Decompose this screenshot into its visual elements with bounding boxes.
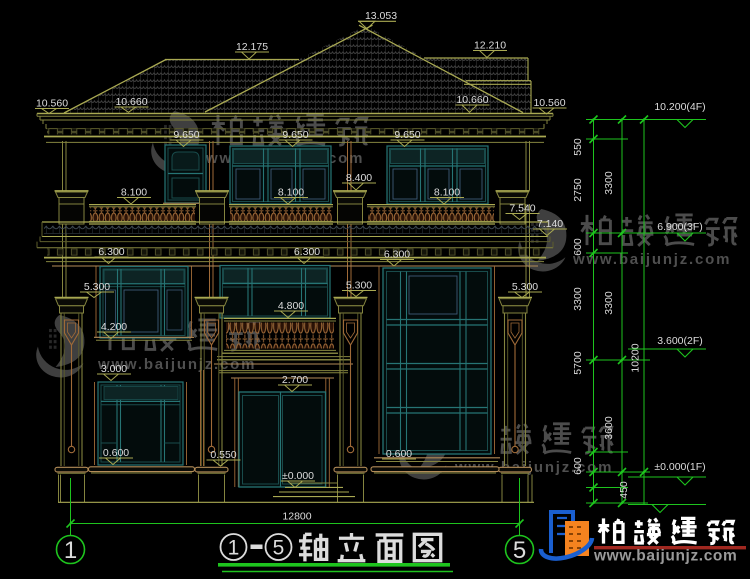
- svg-text:8.400: 8.400: [346, 172, 372, 184]
- svg-text:6.300: 6.300: [98, 246, 124, 258]
- svg-text:www.baijunjz.com: www.baijunjz.com: [593, 548, 737, 565]
- svg-text:7.140: 7.140: [537, 218, 563, 230]
- svg-text:1: 1: [64, 537, 77, 564]
- svg-text:450: 450: [618, 481, 630, 499]
- svg-text:10.660: 10.660: [115, 96, 147, 108]
- svg-text:12800: 12800: [282, 511, 311, 523]
- svg-text:8.100: 8.100: [121, 187, 147, 199]
- svg-text:7.540: 7.540: [509, 203, 535, 215]
- svg-text:3300: 3300: [572, 287, 584, 311]
- svg-text:12.210: 12.210: [474, 40, 506, 52]
- svg-text:3.000: 3.000: [101, 363, 127, 375]
- svg-text:2.700: 2.700: [282, 374, 308, 386]
- svg-text:0.600: 0.600: [386, 448, 412, 460]
- svg-text:6.900(3F): 6.900(3F): [657, 221, 703, 233]
- svg-text:www.baijunjz.com: www.baijunjz.com: [572, 251, 731, 268]
- svg-text:5.300: 5.300: [346, 280, 372, 292]
- svg-text:10200: 10200: [630, 343, 642, 372]
- svg-text:10.660: 10.660: [456, 94, 488, 106]
- svg-text:6.300: 6.300: [294, 246, 320, 258]
- svg-text:12.175: 12.175: [236, 41, 268, 53]
- svg-text:1: 1: [228, 537, 240, 560]
- svg-text:3300: 3300: [603, 291, 615, 315]
- svg-text:5.300: 5.300: [84, 281, 110, 293]
- svg-text:3600: 3600: [603, 416, 615, 440]
- svg-text:±0.000(1F): ±0.000(1F): [654, 461, 705, 473]
- svg-text:0.550: 0.550: [210, 449, 236, 461]
- svg-text:5.300: 5.300: [512, 281, 538, 293]
- svg-text:5: 5: [273, 537, 285, 560]
- svg-text:9.650: 9.650: [394, 129, 420, 141]
- svg-text:600: 600: [572, 238, 584, 256]
- svg-text:5: 5: [513, 537, 526, 564]
- svg-text:10.560: 10.560: [36, 98, 68, 110]
- svg-text:4.200: 4.200: [101, 321, 127, 333]
- svg-text:0.600: 0.600: [103, 447, 129, 459]
- svg-text:3300: 3300: [603, 171, 615, 195]
- svg-text:9.650: 9.650: [173, 129, 199, 141]
- svg-text:10.560: 10.560: [533, 97, 565, 109]
- svg-text:9.650: 9.650: [282, 129, 308, 141]
- svg-text:550: 550: [572, 138, 584, 156]
- svg-text:13.053: 13.053: [365, 10, 397, 22]
- svg-text:4.800: 4.800: [278, 300, 304, 312]
- svg-text:6.300: 6.300: [384, 249, 410, 261]
- svg-text:±0.000: ±0.000: [282, 470, 314, 482]
- svg-text:5700: 5700: [572, 351, 584, 375]
- svg-text:8.100: 8.100: [434, 187, 460, 199]
- svg-text:3.600(2F): 3.600(2F): [657, 335, 703, 347]
- svg-text:600: 600: [572, 457, 584, 475]
- svg-text:10.200(4F): 10.200(4F): [654, 101, 705, 113]
- svg-text:2750: 2750: [572, 178, 584, 202]
- svg-text:8.100: 8.100: [278, 187, 304, 199]
